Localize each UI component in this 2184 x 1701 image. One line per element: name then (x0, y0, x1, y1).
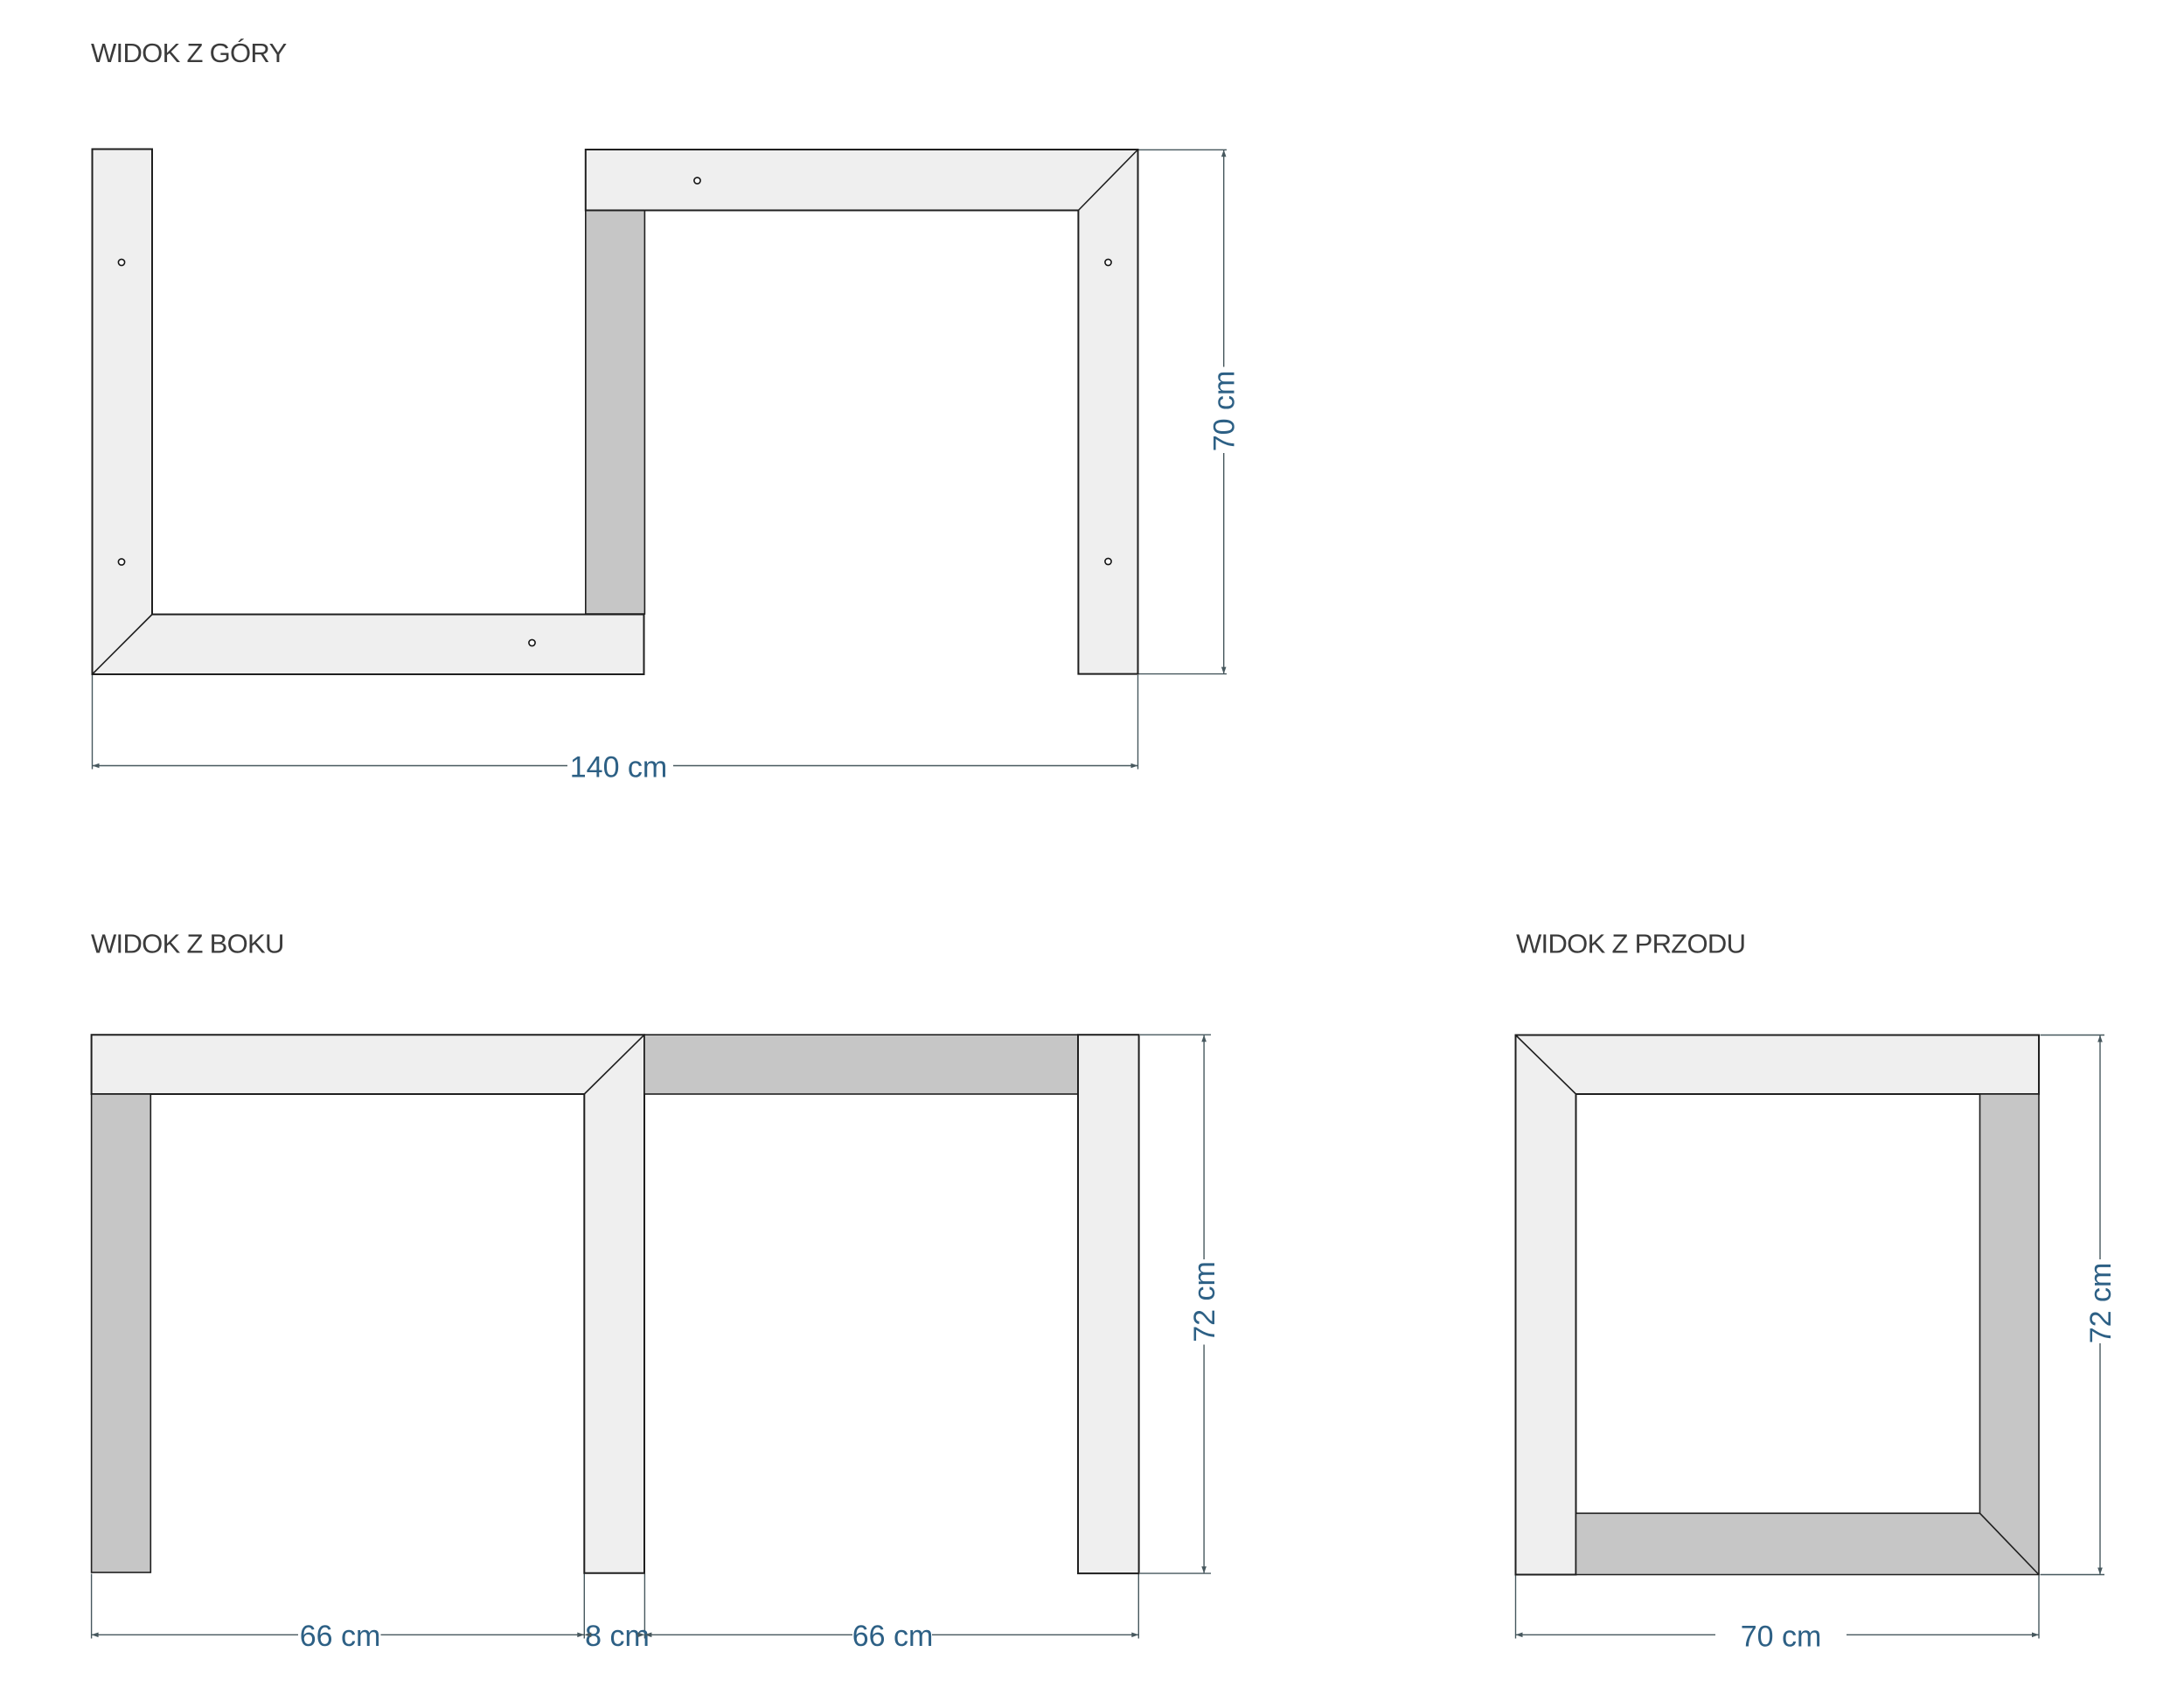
svg-text:72 cm: 72 cm (1188, 1261, 1221, 1342)
svg-text:WIDOK Z BOKU: WIDOK Z BOKU (91, 929, 284, 959)
svg-text:70 cm: 70 cm (1208, 371, 1242, 452)
svg-text:66 cm: 66 cm (300, 1620, 381, 1653)
svg-text:70 cm: 70 cm (1741, 1620, 1822, 1653)
svg-text:WIDOK Z GÓRY: WIDOK Z GÓRY (91, 38, 287, 68)
svg-text:66 cm: 66 cm (852, 1620, 934, 1653)
svg-text:140 cm: 140 cm (570, 751, 668, 784)
svg-text:WIDOK Z PRZODU: WIDOK Z PRZODU (1516, 929, 1745, 959)
svg-text:72 cm: 72 cm (2084, 1263, 2118, 1344)
